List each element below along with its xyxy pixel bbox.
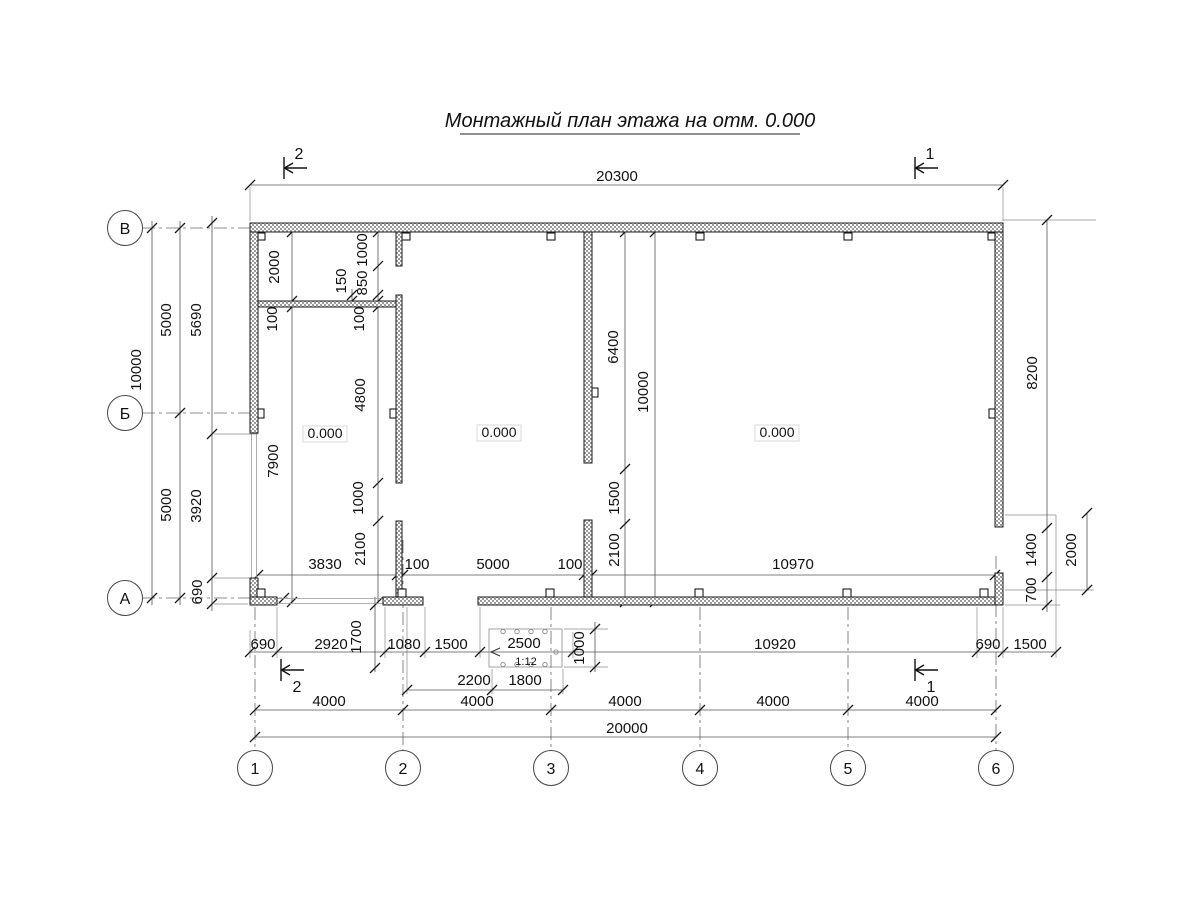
dim-label: 100 [404, 556, 429, 573]
axis-label: 4 [696, 761, 705, 778]
dimension-lines [152, 185, 1087, 737]
ramp-edge-dot [529, 629, 533, 633]
dim-label: 1500 [434, 636, 467, 653]
wall-segment [584, 520, 592, 597]
dim-label: 5690 [188, 303, 205, 336]
axis-label: 6 [992, 761, 1001, 778]
dim-label: 700 [1023, 577, 1040, 602]
column-marker [258, 233, 265, 240]
column-marker [844, 233, 852, 240]
dim-label: 4000 [756, 693, 789, 710]
dim-label: 4000 [312, 693, 345, 710]
axis-label: Б [120, 406, 131, 423]
dim-label: 20000 [606, 720, 648, 737]
column-marker [988, 233, 995, 240]
section-mark-top-left: 2 [284, 146, 307, 179]
wall-segment [383, 597, 423, 605]
dim-label: 100 [351, 306, 368, 331]
dimension-ticks [147, 180, 1092, 742]
dim-label: 2000 [1063, 533, 1080, 566]
dim-label: 6400 [605, 330, 622, 363]
axis-bubble-col-4: 4 [683, 751, 718, 786]
ramp-edge-dot [543, 629, 547, 633]
dim-label: 20300 [596, 168, 638, 185]
axis-bubble-col-2: 2 [386, 751, 421, 786]
column-marker [390, 409, 396, 418]
room-elevation-label: 0.000 [303, 425, 347, 442]
column-marker [258, 409, 264, 418]
dim-label: 850 [354, 270, 371, 295]
partition-segment [396, 521, 402, 597]
section-cut-arrow-icon [281, 659, 304, 681]
dim-label: 1400 [1023, 533, 1040, 566]
dim-label: 690 [189, 579, 206, 604]
dim-label: 10000 [128, 349, 145, 391]
dim-label: 10970 [772, 556, 814, 573]
axis-label: В [120, 221, 131, 238]
elevation-value: 0.000 [307, 425, 342, 441]
dim-label: 2100 [352, 532, 369, 565]
dim-label: 5000 [158, 303, 175, 336]
column-marker [546, 589, 554, 597]
axis-bubble-col-5: 5 [831, 751, 866, 786]
partition-segment [258, 301, 397, 307]
wall-segment [250, 232, 258, 433]
dim-label: 2200 [457, 672, 490, 689]
column-marker [402, 233, 410, 240]
section-cut-arrow-icon [915, 659, 938, 681]
dim-label: 690 [250, 636, 275, 653]
section-label: 2 [295, 146, 304, 163]
wall-segment [995, 573, 1003, 605]
column-marker [989, 409, 995, 418]
axis-bubble-col-1: 1 [238, 751, 273, 786]
column-marker [398, 589, 406, 597]
dim-label: 1000 [354, 233, 371, 266]
dim-label: 1700 [348, 620, 365, 653]
room-elevation-label: 0.000 [477, 424, 521, 441]
dim-label: 4000 [905, 693, 938, 710]
wall-segment [250, 223, 1003, 232]
dim-label: 1000 [571, 631, 588, 664]
dim-label: 150 [333, 268, 350, 293]
wall-segment [995, 232, 1003, 527]
dim-label: 100 [557, 556, 582, 573]
section-mark-top-right: 1 [915, 146, 938, 179]
floor-plan-drawing: Монтажный план этажа на отм. 0.000 [0, 0, 1200, 900]
dim-label: 4000 [608, 693, 641, 710]
axis-label: 5 [844, 761, 853, 778]
dim-label: 2500 [507, 635, 540, 652]
dim-label: 1800 [508, 672, 541, 689]
dim-label: 4800 [352, 378, 369, 411]
section-mark-bottom-left: 2 [281, 659, 304, 696]
column-marker [696, 233, 704, 240]
column-marker [843, 589, 851, 597]
elevation-value: 0.000 [481, 424, 516, 440]
dim-label: 1:12 [515, 656, 536, 668]
section-mark-bottom-right: 1 [915, 659, 938, 696]
dim-label: 5000 [158, 488, 175, 521]
dim-label: 5000 [476, 556, 509, 573]
dim-label: 1000 [350, 481, 367, 514]
axis-bubble-row-b: Б [108, 396, 143, 431]
dim-label: 10000 [635, 371, 652, 413]
dim-label: 2920 [314, 636, 347, 653]
partition-segment [396, 295, 402, 483]
floor-plan-canvas: Монтажный план этажа на отм. 0.000 [0, 0, 1200, 900]
column-marker [695, 589, 703, 597]
dim-label: 100 [264, 306, 281, 331]
axis-bubble-row-v: В [108, 211, 143, 246]
drawing-title: Монтажный план этажа на отм. 0.000 [445, 110, 815, 134]
ramp-edge-dot [515, 629, 519, 633]
dim-label: 8200 [1024, 356, 1041, 389]
dim-label: 1500 [606, 481, 623, 514]
elevation-value: 0.000 [759, 424, 794, 440]
ramp-edge-dot [501, 662, 505, 666]
wall-segment [478, 597, 995, 605]
wall-segment [584, 232, 592, 463]
dim-label: 2000 [266, 250, 283, 283]
ramp-edge-dot [543, 662, 547, 666]
axis-label: 3 [547, 761, 556, 778]
page-title: Монтажный план этажа на отм. 0.000 [445, 110, 815, 132]
axis-label: 1 [251, 761, 260, 778]
dim-label: 2100 [606, 533, 623, 566]
dim-label: 4000 [460, 693, 493, 710]
column-marker [547, 233, 555, 240]
dim-label: 3830 [308, 556, 341, 573]
axis-label: 2 [399, 761, 408, 778]
column-marker [980, 589, 988, 597]
dim-label: 690 [975, 636, 1000, 653]
room-elevation-label: 0.000 [755, 424, 799, 441]
wall-segment [250, 597, 277, 605]
dim-label: 1080 [387, 636, 420, 653]
column-marker [257, 589, 265, 597]
section-label: 2 [293, 679, 302, 696]
section-label: 1 [926, 146, 935, 163]
dim-label: 3920 [188, 489, 205, 522]
ramp-edge-dot [501, 629, 505, 633]
axis-bubble-row-a: А [108, 581, 143, 616]
partition-segment [396, 232, 402, 266]
dim-label: 10920 [754, 636, 796, 653]
column-marker [592, 388, 598, 397]
dim-label: 7900 [265, 444, 282, 477]
axis-label: А [120, 591, 131, 608]
axis-bubble-col-6: 6 [979, 751, 1014, 786]
axis-bubble-col-3: 3 [534, 751, 569, 786]
dim-label: 1500 [1013, 636, 1046, 653]
